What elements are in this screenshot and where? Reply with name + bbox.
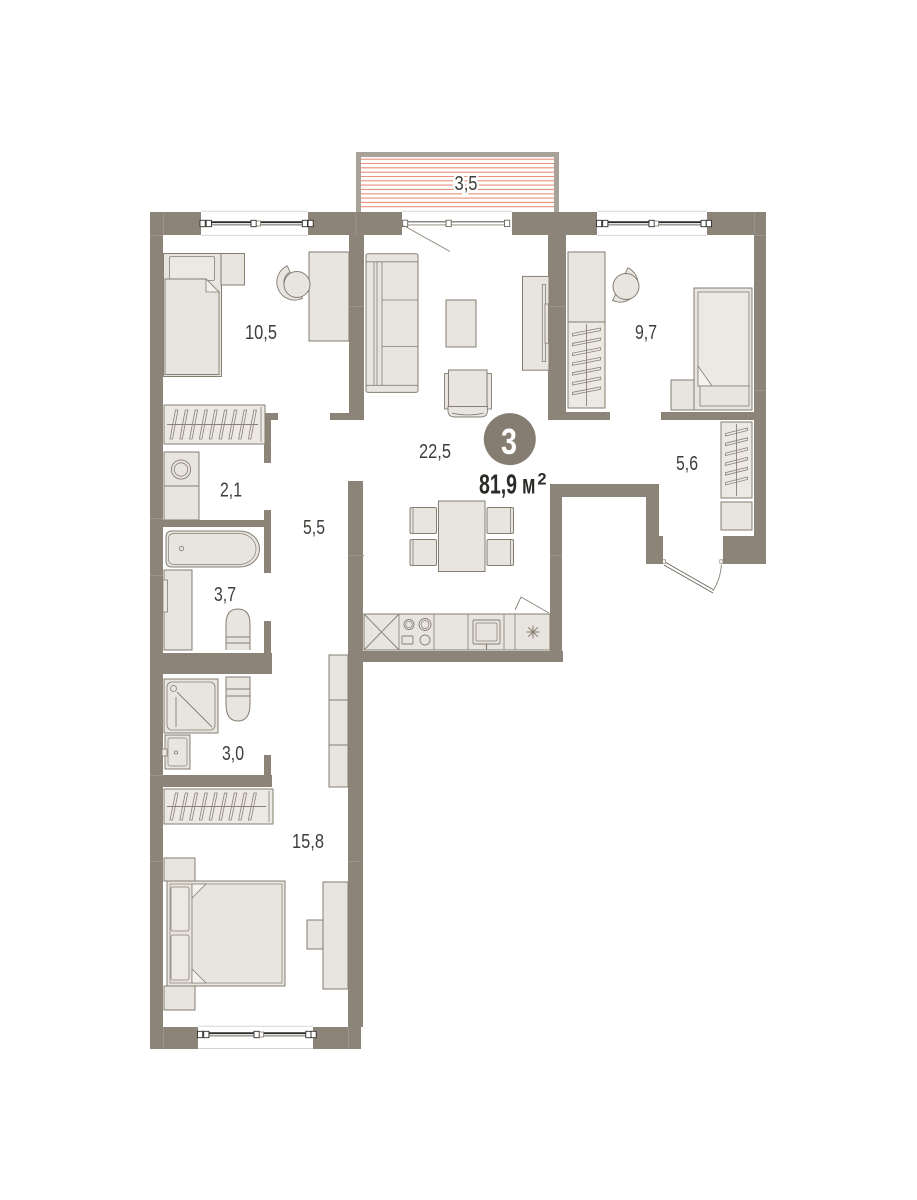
svg-text:м: м — [522, 469, 536, 500]
svg-text:3,5: 3,5 — [455, 172, 478, 195]
svg-text:3: 3 — [501, 421, 517, 462]
svg-text:5,5: 5,5 — [303, 517, 325, 539]
svg-text:2,1: 2,1 — [220, 480, 242, 502]
svg-text:15,8: 15,8 — [292, 831, 324, 853]
svg-text:22,5: 22,5 — [419, 441, 451, 463]
svg-text:5,6: 5,6 — [676, 453, 698, 475]
svg-text:3,0: 3,0 — [222, 743, 244, 765]
svg-text:3,7: 3,7 — [214, 584, 236, 606]
svg-text:9,7: 9,7 — [635, 322, 657, 344]
svg-text:10,5: 10,5 — [245, 322, 277, 344]
svg-text:2: 2 — [538, 470, 547, 489]
svg-text:81,9: 81,9 — [479, 469, 517, 500]
